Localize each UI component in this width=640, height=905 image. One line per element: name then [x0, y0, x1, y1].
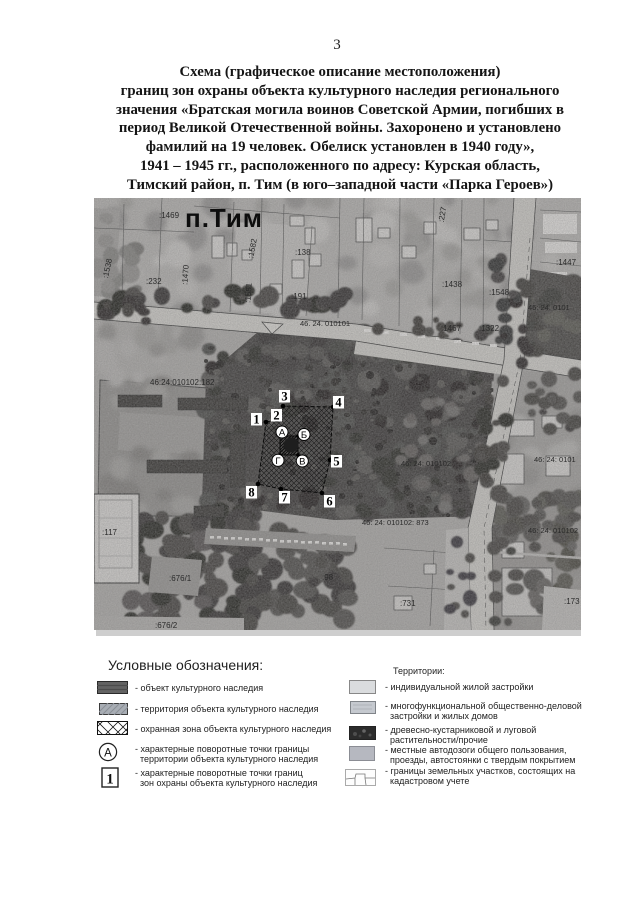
svg-text:46: 24: 010102: 873: 46: 24: 010102: 873	[362, 518, 429, 527]
svg-text:1: 1	[253, 413, 259, 427]
svg-text::1467: :1467	[441, 324, 462, 333]
svg-text:7: 7	[281, 491, 287, 505]
svg-text::173: :173	[564, 597, 580, 606]
svg-text::676/1: :676/1	[169, 574, 192, 583]
svg-text::731: :731	[400, 599, 416, 608]
svg-text:п.Тим: п.Тим	[185, 203, 263, 233]
svg-text::1470: :1470	[180, 264, 190, 285]
svg-text:46:24:010102:182: 46:24:010102:182	[150, 378, 215, 387]
svg-text:2: 2	[273, 409, 279, 423]
svg-text::138: :138	[295, 248, 311, 257]
svg-text:8: 8	[248, 486, 254, 500]
svg-text::1447: :1447	[556, 258, 577, 267]
svg-text:А: А	[104, 748, 112, 760]
svg-text:5: 5	[333, 455, 339, 469]
svg-text:4: 4	[335, 396, 342, 410]
svg-text::1548: :1548	[489, 288, 510, 297]
svg-text:Г: Г	[275, 456, 280, 467]
svg-text:46: 24. 0101: 46: 24. 0101	[528, 303, 570, 312]
svg-text::1322: :1322	[479, 324, 500, 333]
svg-text:1: 1	[106, 772, 114, 788]
svg-text:3: 3	[281, 390, 287, 404]
svg-text:46: 24: 010102: 46: 24: 010102	[401, 459, 451, 468]
svg-text::1438: :1438	[442, 280, 463, 289]
svg-text::117: :117	[102, 528, 118, 537]
svg-text:6: 6	[326, 495, 332, 509]
svg-text:46: 24: 010102: 46: 24: 010102	[528, 526, 578, 535]
svg-text:46. 24. 010101: 46. 24. 010101	[300, 319, 350, 328]
svg-text::1581: :1581	[243, 282, 253, 303]
svg-text:46: 24: 0101: 46: 24: 0101	[534, 455, 576, 464]
svg-text::1469: :1469	[159, 211, 180, 220]
svg-text:В: В	[299, 457, 305, 468]
svg-text:Б: Б	[301, 430, 307, 441]
svg-text::191: :191	[291, 292, 307, 301]
svg-text::232: :232	[146, 277, 162, 286]
svg-text::98: :98	[322, 573, 334, 582]
svg-text::676/2: :676/2	[155, 621, 178, 630]
svg-text:А: А	[279, 428, 286, 439]
